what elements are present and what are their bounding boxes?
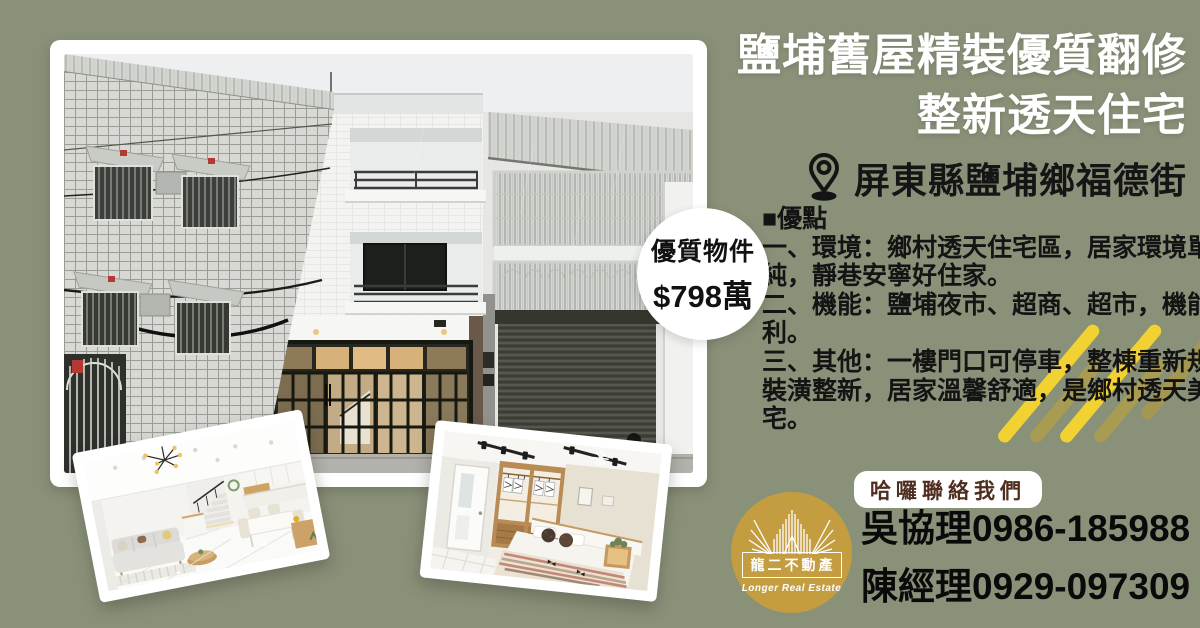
- location-text: 屏東縣鹽埔鄉福德街: [854, 152, 1187, 204]
- logo-english-name: Longer Real Estate: [742, 583, 842, 594]
- points-line: 純，靜巷安寧好住家。: [762, 262, 1200, 291]
- exterior-photo: [50, 40, 707, 487]
- company-logo: 龍二不動產 Longer Real Estate: [731, 492, 852, 613]
- bedroom-photo: [419, 420, 672, 602]
- points-line: 宅。: [762, 405, 1200, 434]
- bedroom-illustration: [430, 431, 661, 591]
- points-line: 裝潢整新，居家溫馨舒適，是鄉村透天美: [762, 377, 1200, 406]
- location-row: 屏東縣鹽埔鄉福德街: [807, 152, 1187, 204]
- exterior-illustration: [64, 54, 693, 473]
- phone-line-2: 陳經理0929-097309: [861, 558, 1190, 616]
- points-line: 二、機能：鹽埔夜市、超商、超市，機能便: [762, 291, 1200, 320]
- logo-name: 龍二不動產: [742, 552, 842, 578]
- contact-phones: 吳協理0986-185988 陳經理0929-097309: [861, 500, 1190, 616]
- building-rays-icon: [748, 502, 836, 554]
- points-line: 利。: [762, 319, 1200, 348]
- title-line-2: 整新透天住宅: [737, 86, 1187, 146]
- points-line: 三、其他：一樓門口可停車，整棟重新規劃: [762, 348, 1200, 377]
- title-line-1: 鹽埔舊屋精裝優質翻修: [737, 26, 1187, 86]
- selling-points: ■優點 一、環境：鄉村透天住宅區，居家環境單 純，靜巷安寧好住家。 二、機能：鹽…: [762, 205, 1200, 434]
- phone-line-1: 吳協理0986-185988: [861, 500, 1190, 558]
- price-badge: 優質物件 $798萬: [637, 208, 769, 340]
- price-badge-label: 優質物件: [651, 232, 755, 268]
- living-room-illustration: [83, 421, 318, 591]
- points-line: 一、環境：鄉村透天住宅區，居家環境單: [762, 234, 1200, 263]
- ad-banner: 優質物件 $798萬 鹽埔舊屋精裝優質翻修 整新透天住宅 屏東縣鹽埔鄉福德街 ■…: [0, 0, 1200, 628]
- points-heading: ■優點: [762, 205, 1200, 234]
- price-badge-amount: $798萬: [653, 271, 753, 316]
- page-title: 鹽埔舊屋精裝優質翻修 整新透天住宅: [737, 26, 1187, 146]
- map-pin-icon: [807, 153, 841, 203]
